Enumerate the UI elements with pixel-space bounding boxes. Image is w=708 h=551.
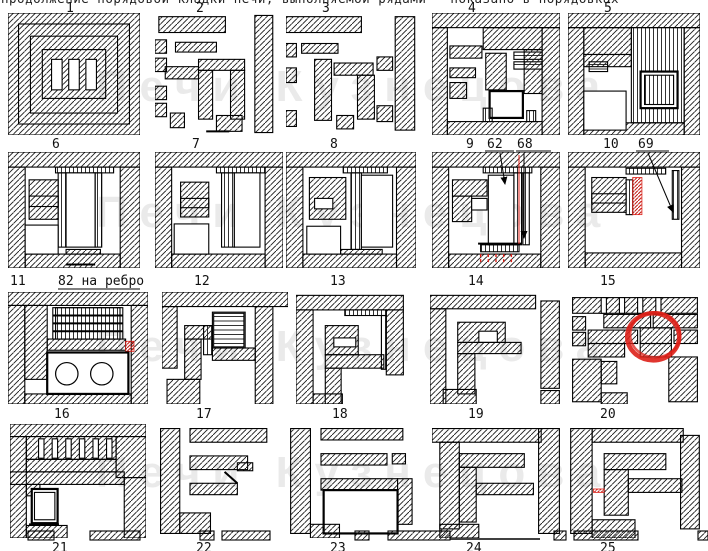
- course-diagram-cell-9: [432, 152, 560, 268]
- cell-number-label: 24: [466, 541, 482, 551]
- cell-number-label: 16: [54, 407, 70, 422]
- cell-number-label: 23: [330, 541, 346, 551]
- course-diagram-cell-16: [10, 424, 146, 538]
- course-diagram-cell-20: [568, 424, 702, 538]
- cell-number-label: 1: [66, 1, 74, 16]
- course-diagram-cell-5: [568, 13, 700, 135]
- cell-number-label: 19: [468, 407, 484, 422]
- course-diagram-cell-6: [8, 152, 140, 268]
- course-diagram-cell-7: [155, 152, 283, 268]
- course-diagram-cell-17: [158, 424, 286, 538]
- course-diagram-cell-12: [162, 292, 288, 404]
- cell-number-label: 10: [603, 137, 619, 152]
- cell-number-label: 13: [330, 274, 346, 289]
- annotation-label: 82 на ребро: [58, 274, 144, 289]
- course-diagram-cell-10: [568, 152, 700, 268]
- top-caption: продолжение порядовой кладки печи, выпол…: [1, 0, 619, 6]
- cell-number-label: 12: [194, 274, 210, 289]
- cell-number-label: 15: [600, 274, 616, 289]
- course-diagram-cell-13: [296, 292, 418, 404]
- cell-number-label: 7: [192, 137, 200, 152]
- cell-number-label: 25: [600, 541, 616, 551]
- page: Печи Кузнецова Печи Кузнецова Печи Кузне…: [0, 0, 708, 551]
- course-diagram-cell-11: [8, 292, 148, 404]
- course-diagram-cell-19: [432, 424, 562, 538]
- annotation-label: 68: [517, 137, 533, 152]
- cell-number-label: 22: [196, 541, 212, 551]
- cell-number-label: 3: [322, 1, 330, 16]
- cell-number-label: 21: [52, 541, 68, 551]
- cell-number-label: 11: [10, 274, 26, 289]
- course-diagram-cell-8: [286, 152, 416, 268]
- cell-number-label: 2: [196, 1, 204, 16]
- course-diagram-cell-1: [8, 13, 140, 135]
- course-diagram-cell-4: [432, 13, 560, 135]
- cell-number-label: 14: [468, 274, 484, 289]
- cell-number-label: 20: [600, 407, 616, 422]
- course-diagram-cell-18: [288, 424, 420, 538]
- cell-number-label: 18: [332, 407, 348, 422]
- cell-number-label: 8: [330, 137, 338, 152]
- annotation-label: 69: [638, 137, 654, 152]
- annotation-label: 62: [487, 137, 503, 152]
- cell-number-label: 9: [466, 137, 474, 152]
- cell-number-label: 4: [468, 1, 476, 16]
- cell-number-label: 6: [52, 137, 60, 152]
- cell-number-label: 5: [604, 1, 612, 16]
- course-diagram-cell-14: [430, 292, 562, 404]
- course-diagram-cell-15: [570, 292, 700, 404]
- course-diagram-cell-3: [286, 13, 416, 135]
- course-diagram-cell-2: [155, 13, 283, 135]
- cell-number-label: 17: [196, 407, 212, 422]
